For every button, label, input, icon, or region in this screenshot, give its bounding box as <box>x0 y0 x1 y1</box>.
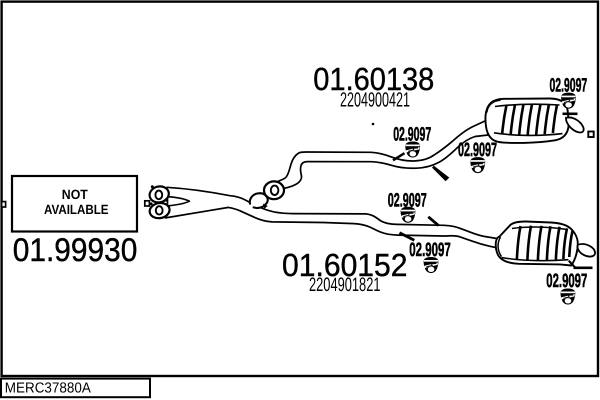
svg-text:02.9097: 02.9097 <box>388 190 427 211</box>
svg-text:01.99930: 01.99930 <box>13 231 138 268</box>
svg-text:02.9097: 02.9097 <box>458 140 497 161</box>
svg-text:02.9097: 02.9097 <box>550 76 588 97</box>
svg-text:02.9097: 02.9097 <box>393 124 431 145</box>
svg-text:02.9097: 02.9097 <box>546 271 587 292</box>
svg-text:2204900421: 2204900421 <box>340 89 410 112</box>
svg-text:02.9097: 02.9097 <box>409 240 451 261</box>
svg-text:NOT: NOT <box>62 187 89 202</box>
svg-text:2204901821: 2204901821 <box>309 274 381 296</box>
svg-text:MERC37880A: MERC37880A <box>5 381 91 397</box>
svg-text:AVAILABLE: AVAILABLE <box>44 202 109 217</box>
